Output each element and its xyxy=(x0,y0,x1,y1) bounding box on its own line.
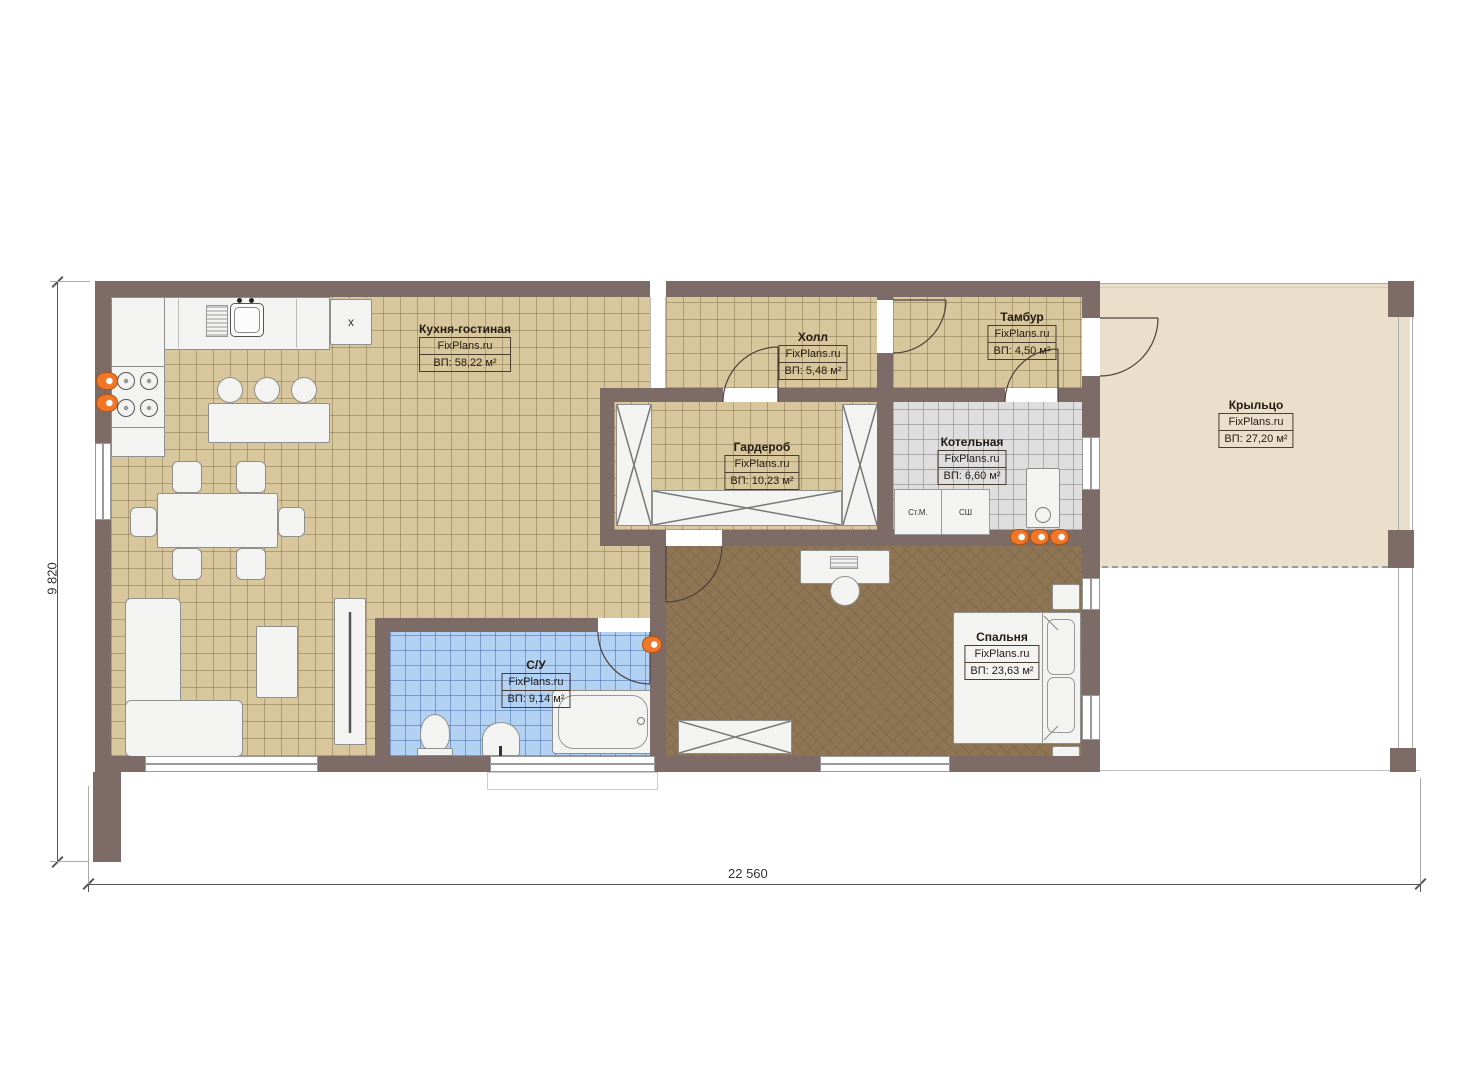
window xyxy=(820,756,950,772)
stove xyxy=(111,366,165,428)
fridge-mark: x xyxy=(348,315,354,329)
coffee-table xyxy=(256,626,298,698)
porch-edge-line xyxy=(1100,283,1412,284)
room-label-kitchen: Кухня-гостиная FixPlans.ru ВП: 58,22 м² xyxy=(419,322,511,372)
nightstand xyxy=(1052,584,1080,610)
brand-label: FixPlans.ru xyxy=(987,325,1056,343)
bar-stool xyxy=(291,377,317,403)
washbasin-faucet xyxy=(499,746,502,756)
bar-island xyxy=(208,403,330,443)
pillow xyxy=(1047,619,1075,675)
bar-stool xyxy=(254,377,280,403)
window xyxy=(1082,437,1100,490)
extension-line xyxy=(1420,778,1421,884)
floor-plan: x Ст.М. СШ xyxy=(0,0,1474,1080)
dining-table xyxy=(157,493,278,548)
burner xyxy=(117,399,135,417)
area-label: ВП: 4,50 м² xyxy=(987,342,1056,360)
boiler xyxy=(1026,468,1060,528)
bedroom-wardrobe xyxy=(678,720,792,754)
room-name: Тамбур xyxy=(987,310,1056,324)
sink-drainboard xyxy=(206,305,228,337)
door-opening xyxy=(877,300,893,353)
room-label-wardrobe: Гардероб FixPlans.ru ВП: 10,23 м² xyxy=(724,440,799,490)
sink-bowl xyxy=(234,307,260,333)
faucet-dot xyxy=(237,298,242,303)
room-name: Спальня xyxy=(964,630,1039,644)
wardrobe-cabinet xyxy=(652,490,842,526)
porch-dashed-edge xyxy=(1102,566,1398,568)
bar-stool xyxy=(217,377,243,403)
faucet-dot xyxy=(249,298,254,303)
washing-machine: Ст.М. xyxy=(894,489,942,535)
counter-divider xyxy=(178,299,179,348)
room-label-bathroom: С/У FixPlans.ru ВП: 9,14 м² xyxy=(501,658,570,708)
drying-cabinet: СШ xyxy=(941,489,990,535)
dining-chair xyxy=(130,507,157,537)
wall xyxy=(600,402,614,546)
room-label-bedroom: Спальня FixPlans.ru ВП: 23,63 м² xyxy=(964,630,1039,680)
window xyxy=(1082,695,1100,740)
dining-chair xyxy=(278,507,305,537)
radiator-valve-icon xyxy=(96,372,118,390)
porch-column xyxy=(1388,530,1414,568)
window xyxy=(95,443,111,520)
wall xyxy=(95,281,111,772)
area-label: ВП: 23,63 м² xyxy=(964,662,1039,680)
brand-label: FixPlans.ru xyxy=(501,673,570,691)
room-label-vestibule: Тамбур FixPlans.ru ВП: 4,50 м² xyxy=(987,310,1056,360)
bathtub-drain xyxy=(637,717,645,725)
area-label: ВП: 27,20 м² xyxy=(1218,430,1293,448)
porch-edge-line xyxy=(1412,283,1413,770)
desk-keyboard xyxy=(830,556,858,569)
room-name: Гардероб xyxy=(724,440,799,454)
terrace-edge-line xyxy=(1100,770,1420,771)
door-opening xyxy=(598,618,650,632)
brand-label: FixPlans.ru xyxy=(419,337,511,355)
porch-column xyxy=(1390,748,1416,772)
brand-label: FixPlans.ru xyxy=(724,455,799,473)
area-label: ВП: 58,22 м² xyxy=(419,354,511,372)
kitchen-sink xyxy=(230,303,264,337)
room-name: Холл xyxy=(778,330,847,344)
counter-divider xyxy=(296,299,297,348)
drying-cabinet-label: СШ xyxy=(959,508,972,517)
room-label-boiler: Котельная FixPlans.ru ВП: 6,60 м² xyxy=(937,435,1006,485)
area-label: ВП: 9,14 м² xyxy=(501,690,570,708)
wall-stub xyxy=(93,772,121,862)
wardrobe-cabinet xyxy=(616,404,652,526)
sofa-seat-section xyxy=(125,700,243,757)
room-name: С/У xyxy=(501,658,570,672)
room-name: Крыльцо xyxy=(1218,398,1293,412)
door-opening xyxy=(723,388,778,402)
pillow xyxy=(1047,677,1075,733)
wardrobe-cabinet xyxy=(842,404,878,526)
dining-chair xyxy=(236,461,266,493)
extension-line xyxy=(50,281,90,282)
dimension-width-label: 22 560 xyxy=(728,866,768,881)
area-label: ВП: 5,48 м² xyxy=(778,362,847,380)
burner xyxy=(140,372,158,390)
boiler-dial xyxy=(1035,507,1051,523)
wall xyxy=(95,281,650,297)
dimension-line-horizontal xyxy=(88,884,1420,885)
area-label: ВП: 6,60 м² xyxy=(937,467,1006,485)
area-label: ВП: 10,23 м² xyxy=(724,472,799,490)
porch-column xyxy=(1388,281,1414,317)
radiator-valve-icon xyxy=(96,394,118,412)
burner xyxy=(117,372,135,390)
bed-divider xyxy=(1042,613,1043,743)
radiator-valve-icon xyxy=(642,636,662,653)
dining-chair xyxy=(236,548,266,580)
toilet-tank xyxy=(417,748,453,756)
door-opening xyxy=(1005,388,1058,402)
fridge: x xyxy=(330,299,372,345)
passage-opening xyxy=(650,297,666,388)
desk-chair xyxy=(830,576,860,606)
window xyxy=(650,281,666,297)
radiator-valve-icon xyxy=(1010,529,1029,545)
room-label-hall: Холл FixPlans.ru ВП: 5,48 м² xyxy=(778,330,847,380)
brand-label: FixPlans.ru xyxy=(937,450,1006,468)
exterior-step xyxy=(487,772,658,790)
toilet xyxy=(420,714,450,752)
porch-edge-line xyxy=(1100,287,1412,288)
door-opening xyxy=(1082,318,1100,376)
extension-line xyxy=(50,861,88,862)
extension-line xyxy=(88,786,89,884)
window xyxy=(490,756,655,772)
bathtub-inner xyxy=(558,695,648,749)
dining-chair xyxy=(172,461,202,493)
room-label-porch: Крыльцо FixPlans.ru ВП: 27,20 м² xyxy=(1218,398,1293,448)
wall xyxy=(877,402,893,530)
door-opening xyxy=(666,530,722,546)
radiator-valve-icon xyxy=(1050,529,1069,545)
room-name: Котельная xyxy=(937,435,1006,449)
window xyxy=(145,756,318,772)
dining-chair xyxy=(172,548,202,580)
burner xyxy=(140,399,158,417)
brand-label: FixPlans.ru xyxy=(964,645,1039,663)
porch-edge-line xyxy=(1398,283,1399,770)
wall xyxy=(375,632,390,756)
tv-stand xyxy=(334,598,366,745)
washing-machine-label: Ст.М. xyxy=(908,508,928,517)
dimension-height-label: 9 820 xyxy=(45,549,60,609)
brand-label: FixPlans.ru xyxy=(778,345,847,363)
room-name: Кухня-гостиная xyxy=(419,322,511,336)
brand-label: FixPlans.ru xyxy=(1218,413,1293,431)
window xyxy=(1082,578,1100,610)
radiator-valve-icon xyxy=(1030,529,1049,545)
